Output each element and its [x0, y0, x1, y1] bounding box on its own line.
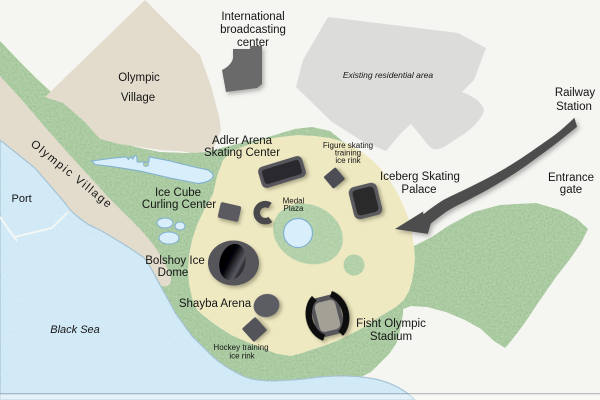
svg-text:Shayba Arena: Shayba Arena — [179, 298, 252, 310]
svg-text:Ice Cube: Ice Cube — [155, 187, 201, 199]
svg-text:Port: Port — [12, 193, 32, 205]
svg-text:Palace: Palace — [401, 184, 436, 196]
svg-text:Iceberg Skating: Iceberg Skating — [380, 171, 460, 183]
svg-text:Fisht Olympic: Fisht Olympic — [356, 318, 426, 330]
svg-text:Curling Center: Curling Center — [142, 199, 216, 211]
svg-text:Railway: Railway — [555, 87, 596, 99]
svg-text:Adler Arena: Adler Arena — [212, 135, 273, 147]
svg-text:center: center — [237, 37, 269, 49]
svg-text:Existing residential area: Existing residential area — [343, 70, 434, 80]
svg-text:Station: Station — [556, 101, 592, 113]
svg-text:Stadium: Stadium — [370, 331, 412, 343]
svg-text:Black Sea: Black Sea — [50, 324, 100, 336]
svg-text:Plaza: Plaza — [283, 204, 304, 213]
svg-text:Olympic: Olympic — [118, 72, 160, 84]
svg-text:Village: Village — [121, 92, 155, 104]
svg-text:broadcasting: broadcasting — [220, 24, 286, 36]
svg-text:Bolshoy Ice: Bolshoy Ice — [145, 255, 204, 267]
svg-text:International: International — [221, 11, 284, 23]
svg-text:Entrance: Entrance — [548, 172, 594, 184]
svg-text:Dome: Dome — [158, 267, 189, 279]
svg-text:ice rink: ice rink — [229, 352, 255, 361]
svg-text:gate: gate — [560, 184, 582, 196]
svg-text:ice rink: ice rink — [335, 156, 361, 165]
svg-text:Skating Center: Skating Center — [204, 147, 280, 159]
